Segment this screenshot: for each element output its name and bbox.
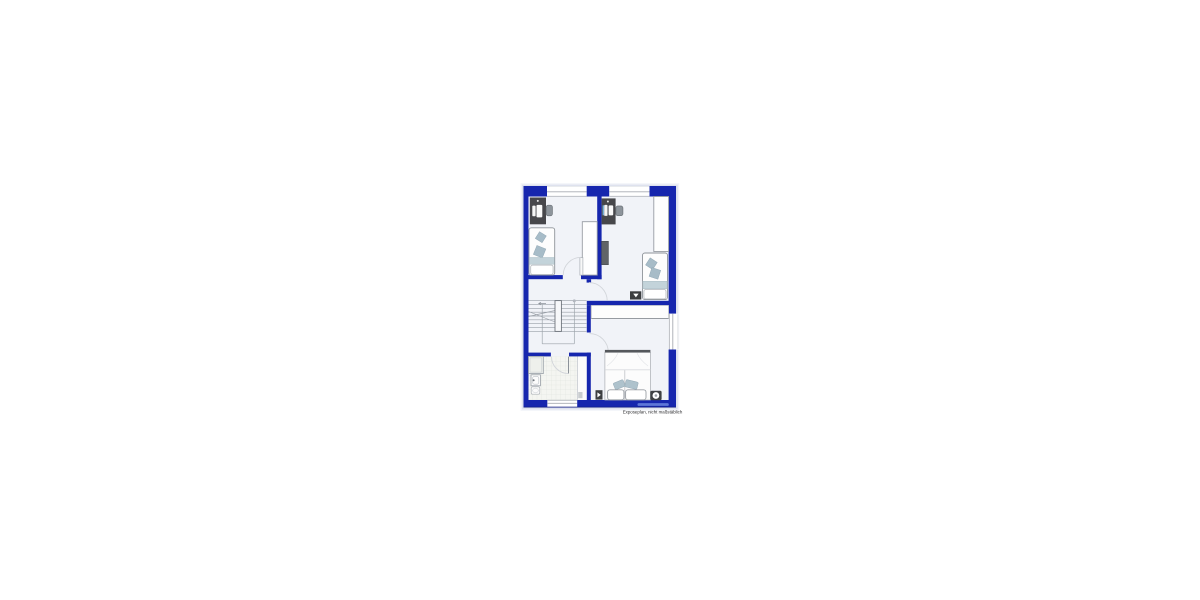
svg-text:Exposeplan, nicht maßstäblich: Exposeplan, nicht maßstäblich <box>623 410 683 415</box>
